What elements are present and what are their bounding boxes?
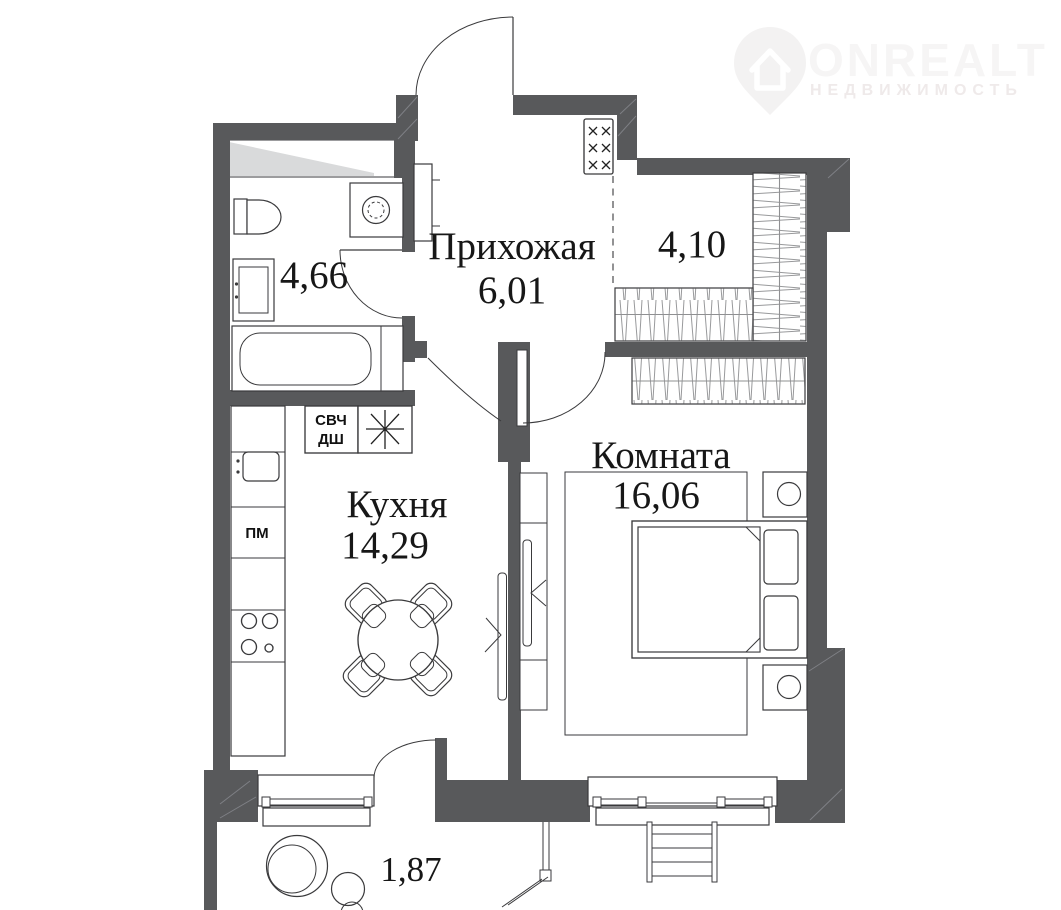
wardrobe-horizontal-lower [632, 358, 805, 404]
balcony-glazing [543, 822, 549, 873]
balcony-door-arc [374, 740, 436, 778]
living-room-label: Комната [591, 434, 731, 477]
hallway-label: Прихожая [428, 225, 595, 268]
kitchen-sliding-door [485, 573, 507, 700]
microwave-label: СВЧ [315, 412, 347, 429]
kitchen-sink-icon [243, 452, 279, 481]
wardrobe-horizontal-upper [615, 288, 753, 341]
dishwasher-label: ПМ [245, 525, 268, 542]
map-pin-icon [734, 27, 806, 115]
nightstand-icon [763, 665, 807, 710]
kitchen-window [258, 775, 374, 826]
sliding-door-leaf [523, 540, 532, 646]
sliding-door-pocket [520, 473, 547, 710]
vent-shaft [229, 140, 402, 177]
dining-table-icon [358, 600, 438, 680]
pillow-icon [764, 530, 798, 584]
kitchen-counter [231, 406, 285, 756]
living-room-window [588, 777, 777, 882]
logo-subtitle-text: НЕДВИЖИМОСТЬ [810, 82, 1023, 99]
dressing-area: 4,10 [658, 223, 726, 266]
kitchen-label: Кухня [347, 483, 448, 526]
wardrobe-vertical [753, 173, 806, 341]
living-room-furniture [517, 350, 807, 735]
washing-machine-icon [350, 183, 403, 237]
radiator-icon [647, 822, 717, 882]
balcony-glazing-diagonal [502, 877, 548, 907]
kitchen-area: 14,29 [341, 524, 429, 567]
bed-icon [632, 521, 807, 658]
oven-label: ДШ [318, 431, 344, 448]
dining-set-icon [340, 580, 455, 700]
fridge-icon [358, 406, 412, 453]
window-sill [263, 808, 370, 826]
balcony-stool-icon [332, 873, 365, 906]
bathtub-icon [232, 326, 403, 391]
electrical-panel-icon [584, 119, 613, 174]
kitchen-fixtures [231, 358, 507, 778]
kitchen-door-arc [428, 358, 501, 421]
bathroom-sink-icon [233, 259, 274, 321]
balcony-area: 1,87 [380, 850, 441, 889]
entrance-door [416, 17, 513, 95]
hallway-area: 6,01 [478, 269, 546, 312]
logo-brand-text: ONREALT [808, 34, 1048, 86]
living-room-area: 16,06 [612, 474, 700, 517]
living-room-door [517, 350, 605, 426]
floorplan-canvas: ONREALT НЕДВИЖИМОСТЬ [0, 0, 1061, 910]
nightstand-icon [763, 472, 807, 517]
window-sill [596, 808, 769, 825]
balcony-stool-icon [341, 902, 363, 910]
balcony-table-icon [267, 836, 328, 897]
toilet-bowl-icon [247, 200, 281, 234]
toilet-icon [234, 199, 247, 234]
floorplan-page: ONREALT НЕДВИЖИМОСТЬ [0, 0, 1061, 910]
onrealt-logo: ONREALT НЕДВИЖИМОСТЬ [734, 27, 1048, 115]
bathroom-area: 4,66 [280, 254, 348, 297]
pillow-icon [764, 596, 798, 650]
bathroom-door [340, 250, 402, 318]
